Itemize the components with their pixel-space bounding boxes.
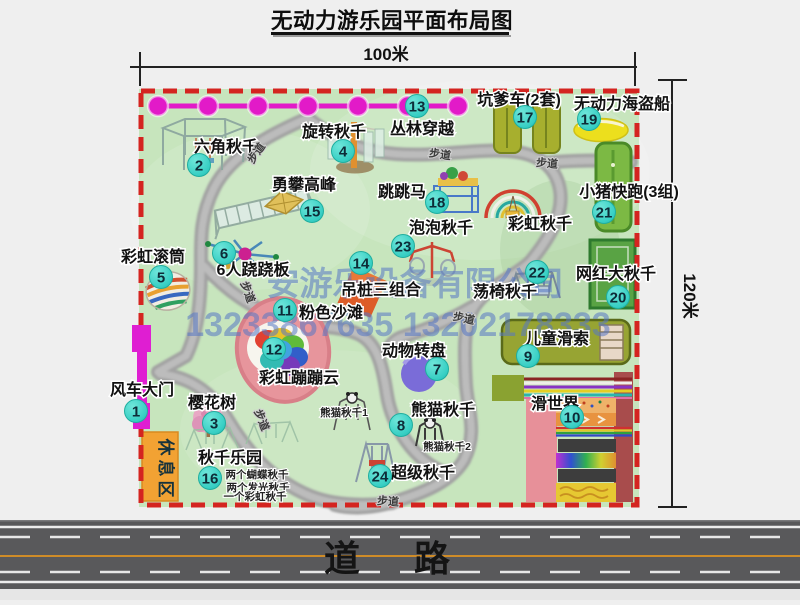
svg-text:丛林穿越: 丛林穿越 xyxy=(390,119,455,138)
svg-text:荡椅秋千: 荡椅秋千 xyxy=(473,282,537,301)
svg-text:熊猫秋千2: 熊猫秋千2 xyxy=(423,440,471,453)
svg-text:16: 16 xyxy=(202,471,219,488)
svg-text:跳跳马: 跳跳马 xyxy=(378,182,426,201)
svg-text:6: 6 xyxy=(220,246,228,263)
svg-text:4: 4 xyxy=(339,144,348,161)
svg-text:一个彩虹秋千: 一个彩虹秋千 xyxy=(224,490,287,503)
svg-text:泡泡秋千: 泡泡秋千 xyxy=(409,218,473,237)
svg-text:11: 11 xyxy=(277,303,293,320)
svg-text:100米: 100米 xyxy=(363,44,409,64)
svg-text:熊猫秋千: 熊猫秋千 xyxy=(411,400,475,419)
svg-text:秋千乐园: 秋千乐园 xyxy=(198,448,262,467)
svg-text:20: 20 xyxy=(610,290,627,307)
svg-text:9: 9 xyxy=(524,349,532,366)
svg-text:两个蝴蝶秋千: 两个蝴蝶秋千 xyxy=(226,468,289,481)
svg-text:14: 14 xyxy=(353,256,370,273)
svg-text:步道: 步道 xyxy=(377,493,400,509)
svg-text:17: 17 xyxy=(517,110,534,127)
svg-text:道 路: 道 路 xyxy=(324,538,472,579)
svg-text:坑爹车(2套): 坑爹车(2套) xyxy=(477,90,561,109)
svg-text:风车大门: 风车大门 xyxy=(110,380,174,399)
svg-text:1: 1 xyxy=(132,404,140,421)
svg-text:勇攀高峰: 勇攀高峰 xyxy=(272,175,337,194)
svg-text:彩虹滚筒: 彩虹滚筒 xyxy=(120,247,185,266)
svg-text:六角秋千: 六角秋千 xyxy=(194,137,258,156)
svg-text:19: 19 xyxy=(581,112,598,129)
svg-text:24: 24 xyxy=(372,469,389,486)
svg-text:儿童滑索: 儿童滑索 xyxy=(524,329,589,348)
svg-text:23: 23 xyxy=(395,239,412,256)
svg-text:熊猫秋千1: 熊猫秋千1 xyxy=(320,406,368,419)
svg-text:粉色沙滩: 粉色沙滩 xyxy=(299,303,363,322)
svg-text:彩虹蹦蹦云: 彩虹蹦蹦云 xyxy=(258,368,339,387)
svg-text:彩虹秋千: 彩虹秋千 xyxy=(507,214,572,233)
svg-text:18: 18 xyxy=(429,195,446,212)
svg-text:网红大秋千: 网红大秋千 xyxy=(576,264,656,283)
svg-text:超级秋千: 超级秋千 xyxy=(390,463,455,482)
svg-text:13: 13 xyxy=(409,99,426,116)
svg-text:旋转秋千: 旋转秋千 xyxy=(301,122,366,141)
svg-text:3: 3 xyxy=(210,416,218,433)
svg-text:吊桩三组合: 吊桩三组合 xyxy=(341,280,422,299)
svg-text:息: 息 xyxy=(156,460,176,477)
svg-text:7: 7 xyxy=(433,362,441,379)
svg-text:2: 2 xyxy=(195,158,203,175)
svg-text:休: 休 xyxy=(156,438,176,457)
svg-text:小猪快跑(3组): 小猪快跑(3组) xyxy=(579,182,679,201)
svg-text:5: 5 xyxy=(157,270,165,287)
svg-text:10: 10 xyxy=(564,410,581,427)
svg-text:8: 8 xyxy=(397,418,405,435)
svg-text:无动力游乐园平面布局图: 无动力游乐园平面布局图 xyxy=(271,8,513,33)
svg-text:12: 12 xyxy=(266,342,283,359)
svg-text:区: 区 xyxy=(156,481,175,498)
svg-text:22: 22 xyxy=(529,265,546,282)
svg-text:樱花树: 樱花树 xyxy=(188,393,236,412)
svg-text:15: 15 xyxy=(304,204,321,221)
svg-text:21: 21 xyxy=(596,205,613,222)
svg-text:120米: 120米 xyxy=(680,273,700,319)
